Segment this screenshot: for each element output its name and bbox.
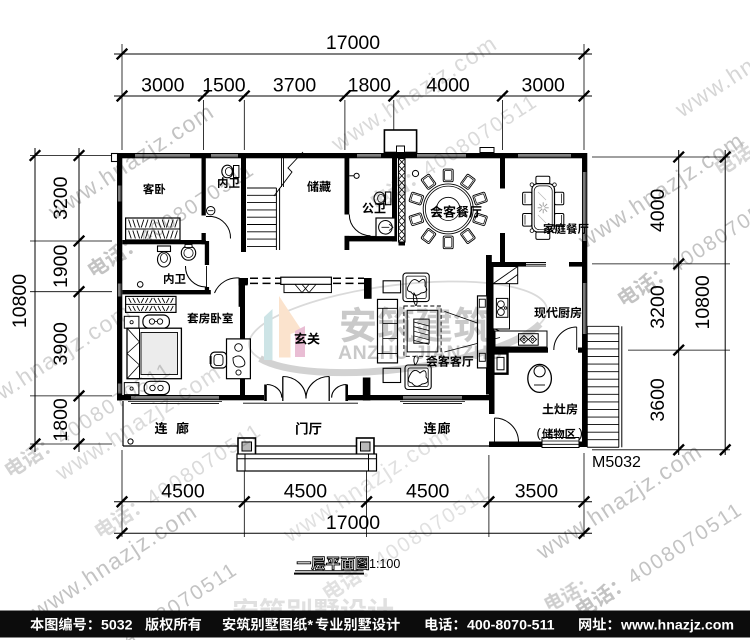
svg-text:1500: 1500 <box>202 75 246 97</box>
svg-text:10800: 10800 <box>9 274 31 328</box>
svg-text:5032: 5032 <box>101 618 133 634</box>
svg-text:17000: 17000 <box>326 32 380 54</box>
svg-text:M5032: M5032 <box>592 454 641 471</box>
svg-text:www.hnazjz.com: www.hnazjz.com <box>620 618 734 634</box>
svg-text:3500: 3500 <box>515 481 559 503</box>
svg-text:(: ( <box>537 426 542 441</box>
svg-text:3200: 3200 <box>647 285 669 329</box>
svg-text:400-8070-511: 400-8070-511 <box>467 618 555 634</box>
svg-text:): ) <box>579 426 583 441</box>
svg-text:4500: 4500 <box>406 481 450 503</box>
svg-text:3700: 3700 <box>273 75 317 97</box>
svg-text:10800: 10800 <box>692 275 714 329</box>
svg-text:1800: 1800 <box>348 75 392 97</box>
svg-text:*: * <box>308 618 314 634</box>
svg-text:1900: 1900 <box>50 244 72 288</box>
svg-text:3600: 3600 <box>647 378 669 422</box>
svg-text:3000: 3000 <box>141 75 185 97</box>
svg-text:ANZHU JIANZHU: ANZHU JIANZHU <box>338 342 503 364</box>
